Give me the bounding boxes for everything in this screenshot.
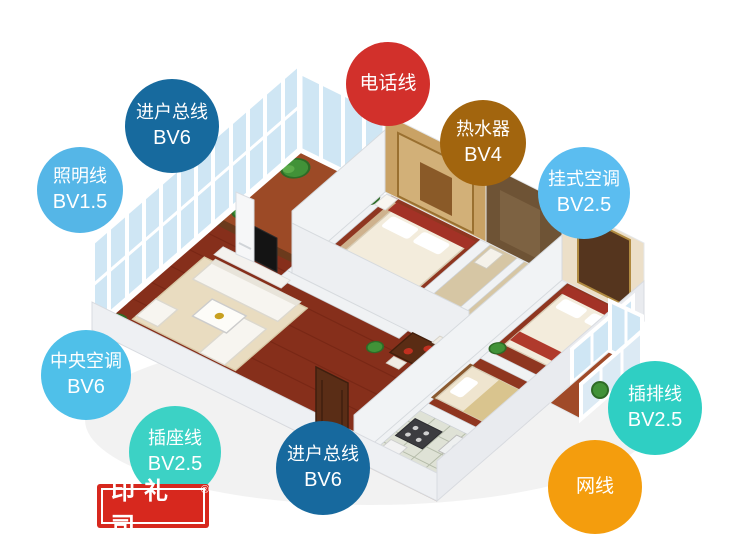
badge-value: BV6 — [153, 127, 191, 149]
badge-label: 网线 — [576, 477, 614, 498]
badge-label: 照明线 — [53, 167, 107, 187]
brand-stamp-text: 印礼司 — [111, 471, 203, 541]
badge-power-strip-line: 插排线 BV2.5 — [608, 361, 702, 455]
badge-incoming-main-line-top: 进户总线 BV6 — [125, 79, 219, 173]
infographic-canvas: 电话线 进户总线 BV6 照明线 BV1.5 热水器 BV4 挂式空调 BV2.… — [0, 0, 737, 530]
badge-label: 中央空调 — [50, 352, 122, 372]
badge-label: 进户总线 — [136, 103, 208, 123]
badge-label: 挂式空调 — [548, 170, 620, 190]
badge-central-ac: 中央空调 BV6 — [41, 330, 131, 420]
badge-value: BV6 — [67, 376, 105, 398]
badge-water-heater: 热水器 BV4 — [440, 100, 526, 186]
badge-network-cable: 网线 — [548, 440, 642, 534]
badge-label: 热水器 — [456, 120, 510, 140]
badge-lighting-line: 照明线 BV1.5 — [37, 147, 123, 233]
badge-label: 进户总线 — [287, 445, 359, 465]
brand-stamp-border: 印礼司 — [101, 488, 205, 524]
floor-ac-unit — [236, 192, 254, 262]
badge-value: BV1.5 — [53, 191, 107, 213]
badge-label: 插排线 — [628, 385, 682, 405]
badge-incoming-main-line-bottom: 进户总线 BV6 — [276, 421, 370, 515]
badge-telephone-line: 电话线 — [346, 42, 430, 126]
registered-mark: ® — [201, 484, 209, 496]
badge-value: BV2.5 — [557, 194, 611, 216]
brand-stamp: 印礼司 ® — [97, 484, 209, 528]
badge-value: BV6 — [304, 469, 342, 491]
badge-value: BV4 — [464, 144, 502, 166]
badge-value: BV2.5 — [628, 409, 682, 431]
badge-wall-mounted-ac: 挂式空调 BV2.5 — [538, 147, 630, 239]
balcony-plant — [592, 382, 608, 398]
badge-label: 电话线 — [359, 74, 416, 95]
badge-label: 插座线 — [148, 429, 202, 449]
